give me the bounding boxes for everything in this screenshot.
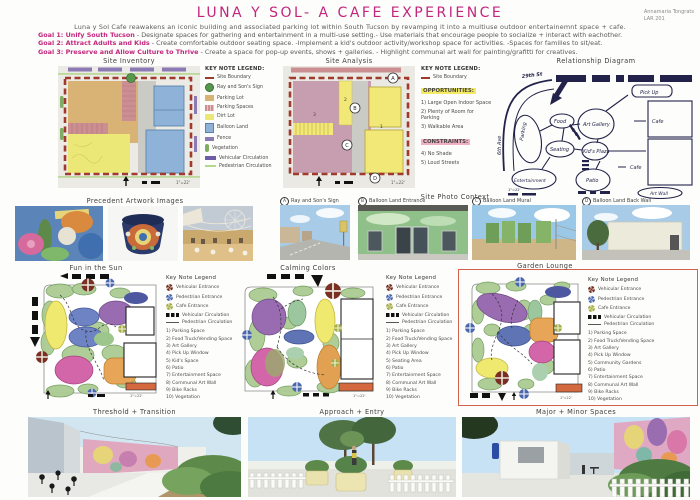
legend-swatch-icon (205, 165, 216, 167)
keynote-item: 6) Patio (588, 367, 692, 374)
legend-label: Ray and Son's Sign (217, 85, 263, 90)
legend-icon (588, 296, 595, 303)
legend-label: Cafe Entrance (176, 304, 209, 309)
keynote-item: 1) Parking Space (588, 330, 692, 337)
constraint-item: 5) Loud Streets (421, 160, 493, 166)
keynote-item: 8) Communal Art Wall (588, 382, 692, 389)
keynote-item: 3) Art Gallery (588, 345, 692, 352)
legend-row: Site Boundary (205, 75, 281, 80)
legend-row: Vehicular Entrance (588, 286, 692, 293)
legend-row: Dirt Lot (205, 114, 281, 120)
legend-icon (166, 322, 179, 323)
site-boundary-swatch-icon (421, 77, 430, 79)
concept-3-title: Garden Lounge (470, 262, 620, 270)
legend-title: KEY NOTE LEGEND: (205, 66, 281, 72)
legend-label: Pedestrian Circulation (402, 320, 452, 325)
presentation-board: LUNA Y SOL- A CAFE EXPERIENCE Annamaria … (0, 0, 700, 500)
scale-text: 1"=22' (560, 396, 572, 400)
goal-label: Goal 3: Preserve and Allow Culture to Th… (38, 48, 198, 56)
photo-letter-badge: A (280, 197, 289, 206)
legend-row: Cafe Entrance (588, 305, 692, 312)
render-threshold-image (28, 417, 241, 497)
legend-row: Vehicular Circulation (588, 315, 692, 320)
context-photo-d: D Balloon Land Back Wall (582, 197, 690, 260)
legend-row: Ray and Son's Sign (205, 83, 281, 92)
photo-caption: D Balloon Land Back Wall (582, 197, 690, 205)
legend-swatch-icon (205, 156, 216, 160)
scale-text: 1"=22' (391, 180, 405, 185)
legend-row: Site Boundary (421, 75, 493, 80)
legend-icon (588, 315, 601, 319)
scale-bar (335, 181, 353, 184)
analysis-buildings (365, 87, 403, 173)
photo-caption: C Balloon Land Mural (472, 197, 576, 205)
goal-line: Goal 2: Attract Adults and Kids - Create… (38, 39, 692, 47)
balloon-land-entrance-photo (358, 205, 468, 260)
site-inventory-panel: Site Inventory (58, 57, 284, 188)
context-photo-c: C Balloon Land Mural (472, 197, 576, 260)
legend-label: Fence (217, 136, 231, 141)
street-buildings (556, 75, 692, 82)
legend-title: Key Note Legend (588, 277, 692, 283)
legend-row: Vehicular Circulation (386, 313, 458, 318)
legend-swatch-icon (205, 95, 214, 101)
goal-text: - Create comfortable outdoor seating spa… (152, 39, 603, 47)
legend-label: Vehicular Entrance (598, 287, 641, 292)
legend-label: Vehicular Circulation (182, 313, 229, 318)
svg-text:Art Gallery: Art Gallery (582, 122, 611, 128)
svg-text:29th St: 29th St (522, 71, 544, 80)
context-photo-a: A Ray and Son's Sign (280, 197, 350, 260)
svg-text:Cafe: Cafe (652, 119, 663, 125)
legend-swatch-icon (205, 144, 209, 152)
talavera-pot-photo (108, 206, 178, 261)
legend-row: Balloon Land (205, 123, 281, 133)
render-2-title: Approach + Entry (248, 408, 456, 416)
legend-label: Site Boundary (217, 75, 251, 80)
legend-swatch-icon (205, 77, 214, 79)
legend-row: Parking Spaces (205, 105, 281, 111)
legend-row: Pedestrian Circulation (205, 164, 281, 169)
keynote-item: 3) Art Gallery (386, 343, 458, 350)
svg-text:Kid's Plaza: Kid's Plaza (583, 149, 610, 155)
opportunity-item: 2) Plenty of Room for Parking (421, 109, 493, 121)
svg-text:Pick Up: Pick Up (640, 90, 658, 96)
photo-caption-text: Ray and Son's Sign (291, 198, 339, 204)
dirt-lot-area (68, 134, 130, 173)
precedent-title: Precedent Artwork Images (15, 197, 255, 205)
legend-row: Fence (205, 136, 281, 141)
project-description: Luna y Sol Cafe reawakens an iconic buil… (0, 23, 700, 31)
render-1-title: Threshold + Transition (28, 408, 241, 416)
keynote-item: 9) Bike Racks (386, 387, 458, 394)
legend-icon (386, 294, 393, 301)
legend-row: Pedestrian Entrance (386, 294, 458, 301)
photo-caption-text: Balloon Land Back Wall (593, 198, 651, 204)
legend-swatch-icon (205, 137, 214, 141)
photo-caption-text: Balloon Land Mural (483, 198, 531, 204)
legend-row: Pedestrian Circulation (386, 320, 458, 325)
legend-icon (166, 303, 173, 310)
legend-label: Pedestrian Entrance (396, 295, 442, 300)
author-name: Annamaria Tongrats (644, 9, 694, 16)
legend-label: Vehicular Circulation (219, 156, 268, 161)
scale-text: 1"=22' (508, 188, 521, 192)
legend-swatch-icon (205, 114, 214, 120)
legend-row: Vehicular Entrance (386, 284, 458, 291)
opportunity-item: 1) Large Open Indoor Space (421, 100, 493, 106)
svg-text:B: B (353, 106, 357, 112)
svg-text:6th Ave: 6th Ave (497, 136, 503, 155)
street-view-photo (280, 205, 350, 260)
photo-caption-text: Balloon Land Entrance (369, 198, 425, 204)
legend-label: Vegetation (212, 146, 238, 151)
legend-row: Vegetation (205, 144, 281, 152)
legend-label: Cafe Entrance (396, 304, 429, 309)
site-inventory-legend: KEY NOTE LEGEND: Site Boundary Ray and S… (205, 66, 281, 188)
keynote-item: 2) Food Truck/Vending Space (386, 336, 458, 343)
legend-label: Pedestrian Circulation (604, 322, 654, 327)
photo-caption: A Ray and Son's Sign (280, 197, 350, 205)
person-figure (352, 446, 357, 465)
legend-label: Parking Lot (217, 96, 244, 101)
relationship-diagram-title: Relationship Diagram (494, 57, 698, 65)
concept-3-plan: 1"=22' (462, 272, 586, 402)
legend-label: Vehicular Entrance (396, 285, 439, 290)
legend-label: Dirt Lot (217, 114, 235, 119)
legend-label: Vehicular Circulation (402, 313, 449, 318)
opportunities-heading: OPPORTUNITIES: (421, 88, 476, 94)
concept-1-title: Fun in the Sun (30, 264, 162, 272)
svg-text:1: 1 (380, 124, 383, 130)
goals-list: Goal 1: Unify South Tucson - Designate s… (38, 31, 692, 56)
legend-icon (588, 286, 595, 293)
keynote-item: 10) Vegetation (588, 396, 692, 403)
concept-2-legend: Key Note Legend Vehicular Entrance Pedes… (386, 275, 458, 402)
legend-row: Pedestrian Circulation (588, 322, 692, 327)
site-analysis-plan: 1 2 3 A B C D (283, 66, 415, 188)
goal-label: Goal 1: Unify South Tucson (38, 31, 135, 39)
keynote-item: 10) Vegetation (386, 394, 458, 401)
legend-icon (386, 303, 393, 310)
keynote-item: 4) Pick Up Window (386, 350, 458, 357)
svg-text:Food: Food (554, 119, 567, 125)
keynote-item: 2) Food Truck/Vending Space (588, 338, 692, 345)
legend-row: Cafe Entrance (386, 303, 458, 310)
legend-row: Pedestrian Entrance (588, 296, 692, 303)
goal-line: Goal 3: Preserve and Allow Culture to Th… (38, 48, 692, 56)
scale-text: 1"=22' (176, 180, 190, 185)
scale-bar (88, 394, 105, 397)
keynote-item: 6) Patio (386, 365, 458, 372)
scale-text: 1"=22' (130, 394, 143, 398)
svg-text:Parking: Parking (519, 122, 528, 142)
svg-text:Cafe: Cafe (630, 165, 641, 171)
render-3-title: Major + Minor Spaces (462, 408, 690, 416)
legend-label: Cafe Entrance (598, 306, 631, 311)
svg-text:Seating: Seating (550, 147, 569, 153)
goal-text: - Create a space for pop-up events, show… (201, 48, 578, 56)
legend-icon (166, 294, 173, 301)
legend-row: Vehicular Circulation (205, 156, 281, 161)
legend-icon (386, 313, 399, 317)
north-arrow-icon (512, 392, 516, 400)
legend-label: Vehicular Entrance (176, 285, 219, 290)
legend-title: KEY NOTE LEGEND: (421, 66, 493, 72)
photo-letter-badge: D (582, 197, 591, 206)
concept-2-plan: 1"=22' (233, 273, 383, 401)
goal-text: - Designate spaces for gathering and ent… (137, 31, 622, 39)
relationship-diagram-sketch: 29th St 6th Ave Parking Food Art Gallery… (494, 65, 698, 199)
site-analysis-legend: KEY NOTE LEGEND: Site Boundary OPPORTUNI… (421, 66, 493, 188)
legend-label: Pedestrian Entrance (176, 295, 222, 300)
legend-label: Pedestrian Entrance (598, 297, 644, 302)
legend-label: Pedestrian Circulation (182, 320, 232, 325)
site-analysis-title: Site Analysis (283, 57, 415, 65)
render-approach-image (248, 417, 456, 497)
opportunity-item: 3) Walkable Area (421, 124, 493, 130)
page-title: LUNA Y SOL- A CAFE EXPERIENCE (0, 5, 700, 21)
legend-icon (588, 305, 595, 312)
legend-icon (588, 324, 601, 325)
keynote-item: 7) Entertainment Space (588, 374, 692, 381)
svg-text:2: 2 (344, 97, 347, 103)
relationship-diagram-panel: Relationship Diagram (494, 57, 698, 199)
legend-swatch-icon (205, 83, 214, 92)
legend-row: Parking Lot (205, 95, 281, 101)
legend-label: Balloon Land (217, 125, 248, 130)
site-inventory-title: Site Inventory (58, 57, 200, 65)
legend-label: Site Boundary (433, 75, 467, 80)
legend-label: Vehicular Circulation (604, 315, 651, 320)
site-analysis-panel: Site Analysis 1 2 3 (283, 57, 495, 188)
legend-icon (166, 284, 173, 291)
svg-text:Patio: Patio (586, 178, 599, 184)
goal-label: Goal 2: Attract Adults and Kids (38, 39, 150, 47)
keynote-item: 7) Entertainment Space (386, 372, 458, 379)
legend-icon (386, 322, 399, 323)
keynote-item: 5) Seating Area (386, 358, 458, 365)
ray-and-sons-sign-marker (127, 74, 136, 83)
author-block: Annamaria Tongrats LAR 201 (644, 9, 694, 23)
svg-text:Entertainment: Entertainment (514, 178, 546, 184)
render-spaces-image (462, 417, 690, 497)
vehicular-circulation-marks (470, 393, 506, 401)
legend-swatch-icon (205, 105, 214, 111)
entry-arrow-icon (550, 80, 566, 105)
course-code: LAR 201 (644, 16, 694, 23)
context-photo-b: B Balloon Land Entrance (358, 197, 468, 260)
keynote-item: 1) Parking Space (386, 328, 458, 335)
photo-letter-badge: B (358, 197, 367, 206)
legend-label: Parking Spaces (217, 105, 253, 110)
svg-text:D: D (373, 176, 377, 182)
keynote-item: 5) Community Gardens (588, 360, 692, 367)
goal-line: Goal 1: Unify South Tucson - Designate s… (38, 31, 692, 39)
keynote-item: 8) Communal Art Wall (386, 380, 458, 387)
constraints-heading: CONSTRAINTS: (421, 139, 470, 145)
photo-caption: B Balloon Land Entrance (358, 197, 468, 205)
balloon-land-mural-photo (472, 205, 576, 260)
concept-2-title: Calming Colors (233, 264, 383, 272)
scale-bar (142, 181, 160, 184)
scale-text: 1"=22' (353, 394, 366, 398)
string-lights-patio-photo (183, 206, 253, 261)
legend-icon (166, 313, 179, 317)
svg-text:A: A (391, 76, 395, 82)
legend-icon (386, 284, 393, 291)
svg-text:3: 3 (313, 112, 316, 118)
legend-title: Key Note Legend (386, 275, 458, 281)
concept-1-plan: 1"=22' (30, 273, 162, 401)
legend-label: Pedestrian Circulation (219, 164, 272, 169)
mural-artwork-photo (15, 206, 103, 261)
legend-swatch-icon (205, 123, 214, 133)
keynote-item: 9) Bike Racks (588, 389, 692, 396)
concept-3-legend: Key Note Legend Vehicular Entrance Pedes… (588, 277, 692, 404)
keynote-item: 4) Pick Up Window (588, 352, 692, 359)
constraint-item: 4) No Shade (421, 151, 493, 157)
svg-text:C: C (345, 143, 349, 149)
balloon-land-back-wall-photo (582, 205, 690, 260)
site-inventory-plan: 1"=22' (58, 66, 200, 188)
photo-letter-badge: C (472, 197, 481, 206)
